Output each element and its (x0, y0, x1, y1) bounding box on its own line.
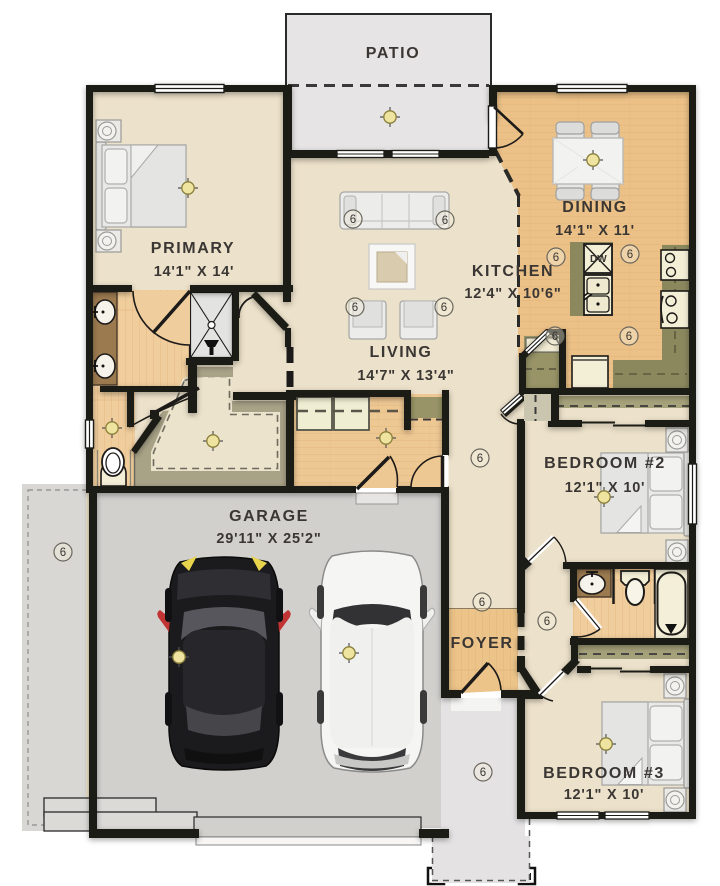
svg-text:BEDROOM #2: BEDROOM #2 (544, 455, 666, 472)
svg-text:KITCHEN: KITCHEN (472, 263, 554, 280)
svg-text:12'4" X 10'6": 12'4" X 10'6" (464, 286, 561, 302)
svg-text:BEDROOM #3: BEDROOM #3 (543, 765, 665, 782)
svg-text:LIVING: LIVING (370, 344, 433, 361)
svg-text:12'1" X 10': 12'1" X 10' (564, 787, 645, 803)
svg-text:GARAGE: GARAGE (229, 508, 309, 525)
svg-text:PATIO: PATIO (366, 45, 421, 62)
svg-text:14'1" X 11': 14'1" X 11' (555, 223, 635, 239)
svg-text:12'1" X 10': 12'1" X 10' (565, 480, 646, 496)
svg-text:DW: DW (590, 254, 607, 265)
svg-text:14'7" X 13'4": 14'7" X 13'4" (357, 368, 454, 384)
svg-text:PRIMARY: PRIMARY (151, 240, 235, 257)
svg-text:29'11" X 25'2": 29'11" X 25'2" (216, 531, 321, 547)
svg-text:14'1" X 14': 14'1" X 14' (154, 264, 235, 280)
svg-text:DINING: DINING (562, 199, 628, 216)
svg-text:FOYER: FOYER (450, 635, 513, 652)
